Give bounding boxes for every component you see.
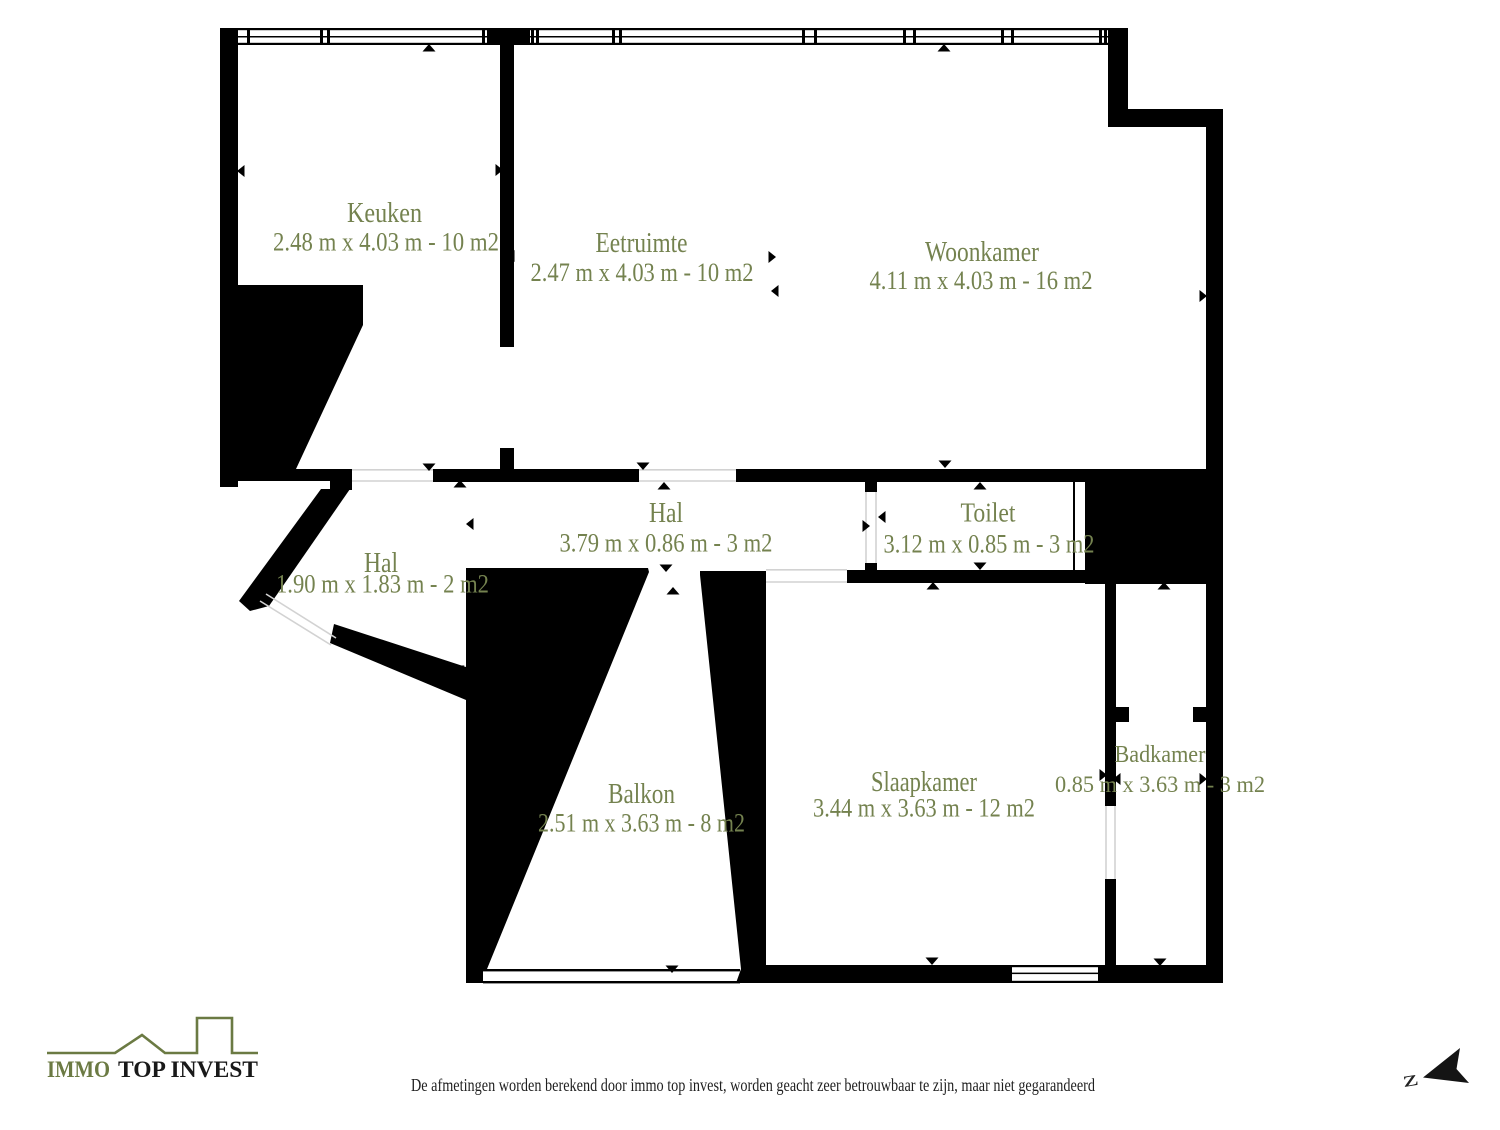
svg-text:Badkamer: Badkamer [1115,742,1206,768]
svg-text:Woonkamer: Woonkamer [925,236,1039,268]
svg-text:2.47 m x 4.03 m - 10 m2: 2.47 m x 4.03 m - 10 m2 [531,257,754,287]
svg-text:Balkon: Balkon [608,778,675,810]
svg-text:TOP INVEST: TOP INVEST [118,1057,258,1082]
svg-text:Eetruimte: Eetruimte [596,227,688,259]
svg-text:Hal: Hal [649,497,683,529]
svg-text:IMMO: IMMO [47,1057,110,1082]
svg-text:3.44 m x 3.63 m - 12 m2: 3.44 m x 3.63 m - 12 m2 [813,793,1035,823]
svg-text:De afmetingen worden berekend: De afmetingen worden berekend door immo … [411,1075,1095,1095]
svg-text:0.85 m x 3.63 m - 3 m2: 0.85 m x 3.63 m - 3 m2 [1055,772,1265,797]
svg-text:2.51 m x 3.63 m - 8 m2: 2.51 m x 3.63 m - 8 m2 [538,808,745,838]
svg-text:4.11 m x 4.03 m - 16 m2: 4.11 m x 4.03 m - 16 m2 [870,265,1093,295]
svg-text:Toilet: Toilet [961,498,1016,528]
svg-text:3.79 m x 0.86 m - 3 m2: 3.79 m x 0.86 m - 3 m2 [560,528,773,558]
svg-text:2.48 m x 4.03 m - 10 m2: 2.48 m x 4.03 m - 10 m2 [273,227,499,257]
svg-text:Keuken: Keuken [347,197,422,229]
svg-text:1.90 m x 1.83 m - 2 m2: 1.90 m x 1.83 m - 2 m2 [276,569,489,599]
svg-text:3.12 m x 0.85 m - 3 m2: 3.12 m x 0.85 m - 3 m2 [884,529,1095,559]
